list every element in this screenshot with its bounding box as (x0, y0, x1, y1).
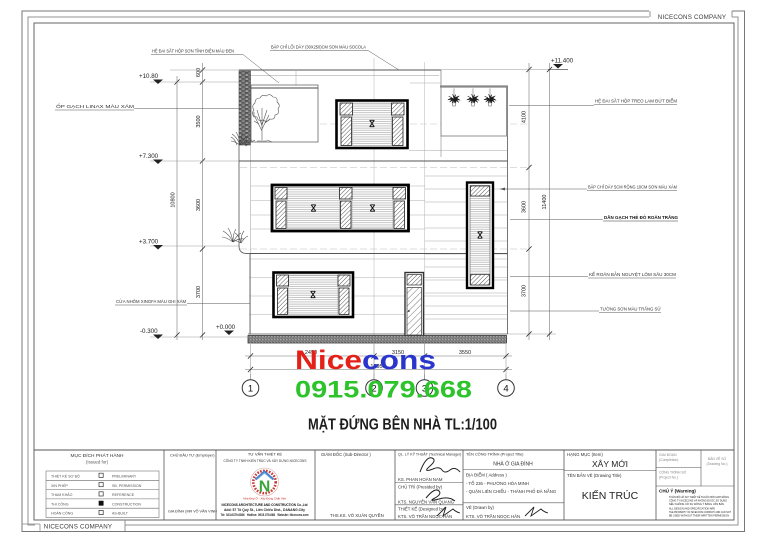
svg-text:NICECONS COMPANY: NICECONS COMPANY (658, 14, 726, 21)
svg-text:TƯỜNG SƠN MÀU TRẮNG SỮ: TƯỜNG SƠN MÀU TRẮNG SỮ (600, 307, 661, 312)
svg-text:THIẾT KẾ SƠ BỘ: THIẾT KẾ SƠ BỘ (51, 474, 80, 479)
svg-text:XÂY MỚI: XÂY MỚI (592, 459, 628, 469)
svg-text:KTS. VÕ TRẦN NGỌC HÂN: KTS. VÕ TRẦN NGỌC HÂN (466, 514, 520, 519)
svg-text:GIA ĐÌNH (MR VÕ VĂN VINH: GIA ĐÌNH (MR VÕ VĂN VINH (168, 509, 217, 514)
svg-text:CHỦ TRÌ (Presided by): CHỦ TRÌ (Presided by) (398, 485, 443, 490)
svg-text:10800: 10800 (171, 192, 177, 207)
svg-text:XIN PHÉP: XIN PHÉP (51, 483, 68, 488)
svg-text:NHÀ Ở GIA ĐÌNH: NHÀ Ở GIA ĐÌNH (493, 461, 533, 468)
svg-text:+0.000: +0.000 (216, 324, 236, 331)
svg-text:N: N (259, 479, 271, 496)
svg-text:BE USED WITHOUT THEIR WRIT: BE USED WITHOUT THEIR WRITTEN PERMISSION (669, 514, 729, 518)
svg-text:600: 600 (196, 68, 202, 77)
svg-text:THAM KHẢO: THAM KHẢO (51, 492, 73, 497)
svg-text:3600: 3600 (522, 201, 528, 213)
svg-text:CONSTRUCTION: CONSTRUCTION (112, 502, 141, 506)
svg-text:THE PROPERTY OF NICECONS COMPA: THE PROPERTY OF NICECONS COMPANY AND CAN… (669, 510, 731, 514)
svg-text:4: 4 (503, 384, 508, 395)
svg-text:SB. PERMISSION: SB. PERMISSION (112, 484, 142, 488)
svg-text:THS.KS. VÕ XUÂN QUYỀN: THS.KS. VÕ XUÂN QUYỀN (330, 513, 384, 518)
svg-text:THI CÔNG: THI CÔNG (51, 501, 69, 506)
svg-text:(Issued for): (Issued for) (86, 460, 109, 465)
svg-text:GIAI ĐOẠN: GIAI ĐOẠN (659, 453, 677, 457)
svg-text:HỆ ĐAI SẮT HỘP TREO LAM ĐỨT ĐI: HỆ ĐAI SẮT HỘP TREO LAM ĐỨT ĐIỂM (595, 99, 677, 104)
svg-text:HẠNG MỤC (Item): HẠNG MỤC (Item) (567, 452, 603, 457)
svg-text:NICECONS ARCHITECTURE AND CONS: NICECONS ARCHITECTURE AND CONSTRUCTION C… (222, 503, 308, 507)
svg-text:REFERENCE: REFERENCE (112, 493, 135, 497)
svg-text:KTS. VÕ TRẦN NGỌC HÂN: KTS. VÕ TRẦN NGỌC HÂN (398, 514, 452, 519)
svg-text:+11.400: +11.400 (551, 58, 574, 65)
svg-text:4100: 4100 (522, 111, 528, 123)
svg-text:AS-BUILT: AS-BUILT (112, 512, 129, 516)
svg-text:Add: 57 Tô Quý St., Liên Chiểu: Add: 57 Tô Quý St., Liên Chiểu Dist., DA… (224, 508, 305, 512)
svg-text:(Completion): (Completion) (659, 458, 678, 462)
svg-text:TÊN CÔNG TRÌNH (Project Title): TÊN CÔNG TRÌNH (Project Title) (466, 452, 524, 457)
svg-text:- TỔ 236 - PHƯỜNG HÒA MINH: - TỔ 236 - PHƯỜNG HÒA MINH (466, 481, 529, 486)
svg-text:BẢN VẼ SỐ: BẢN VẼ SỐ (708, 456, 727, 461)
svg-text:MẶT ĐỨNG BÊN NHÀ TL:1/100: MẶT ĐỨNG BÊN NHÀ TL:1/100 (308, 416, 497, 434)
svg-text:CÔNG TY TNHH KIẾN TRÚC VÀ XÂY: CÔNG TY TNHH KIẾN TRÚC VÀ XÂY DỰNG NICEC… (224, 458, 307, 463)
svg-text:-0.300: -0.300 (140, 328, 158, 335)
svg-text:KỂ ROĂN BẢN NGUYỆT LÕM SÂU 30C: KỂ ROĂN BẢN NGUYỆT LÕM SÂU 30CM (589, 272, 676, 277)
svg-text:(Project No.): (Project No.) (659, 476, 678, 480)
svg-text:DẦN GẠCH THẺ ĐỎ ROĂN TRẮNG: DẦN GẠCH THẺ ĐỎ ROĂN TRẮNG (604, 213, 678, 220)
svg-text:TÊN BẢN VẼ (Drawing Title): TÊN BẢN VẼ (Drawing Title) (567, 473, 622, 478)
svg-text:ĐỊA ĐIỂM ( Address ): ĐỊA ĐIỂM ( Address ) (466, 473, 507, 478)
svg-text:CÔNG TRÌNH SỐ: CÔNG TRÌNH SỐ (659, 470, 687, 475)
svg-text:TƯ VẤN THIẾT KẾ: TƯ VẤN THIẾT KẾ (248, 452, 282, 457)
svg-text:HOÀN CÔNG: HOÀN CÔNG (51, 511, 73, 516)
svg-text:+3.700: +3.700 (139, 239, 159, 246)
svg-text:BẬP CHỈ LỐI DÀY (30X250)CM SƠN: BẬP CHỈ LỐI DÀY (30X250)CM SƠN MÀU SOCOL… (271, 45, 366, 50)
svg-text:CỬA NHÔM XINGFA MÀU GHI XÁM: CỬA NHÔM XINGFA MÀU GHI XÁM (116, 299, 186, 304)
svg-text:3700: 3700 (522, 285, 528, 297)
svg-text:- QUẬN LIÊN CHIỂU - THÀNH PHỐ: - QUẬN LIÊN CHIỂU - THÀNH PHỐ ĐÀ NẴNG (466, 489, 557, 494)
svg-text:(Drawing No.): (Drawing No.) (707, 462, 728, 466)
svg-text:CHÚ Ý (Warning): CHÚ Ý (Warning) (659, 488, 696, 494)
svg-text:Nhà Đẹp Ở - Xây Đúng Chất Việt: Nhà Đẹp Ở - Xây Đúng Chất Việt (243, 496, 286, 501)
svg-text:GIÁM ĐỐC (Sub-Director ): GIÁM ĐỐC (Sub-Director ) (321, 452, 371, 457)
svg-text:HỆ ĐAI SẮT HỘP SƠN TĨNH ĐIỆN M: HỆ ĐAI SẮT HỘP SƠN TĨNH ĐIỆN MÀU ĐEN (152, 49, 234, 54)
svg-text:ỐP GẠCH LINAX MÀU XÁM: ỐP GẠCH LINAX MÀU XÁM (56, 104, 134, 109)
svg-text:11400: 11400 (542, 195, 548, 210)
svg-text:1: 1 (248, 384, 253, 395)
svg-text:THIẾT KẾ (Designed by): THIẾT KẾ (Designed by) (398, 507, 446, 512)
svg-text:0915.079.668: 0915.079.668 (295, 377, 472, 404)
svg-text:KS. PHAN HOÀN NAM: KS. PHAN HOÀN NAM (398, 477, 443, 482)
svg-text:VẼ (Drawn by): VẼ (Drawn by) (466, 505, 495, 510)
svg-text:3550: 3550 (459, 350, 471, 356)
svg-text:Tel: 023.6379.6366 Hotline:: Tel: 023.6379.6366 Hotline: 0915.079.668… (221, 513, 309, 517)
svg-text:3500: 3500 (196, 115, 202, 127)
svg-text:QL. LÝ KỸ THUẬT (Technical Man: QL. LÝ KỸ THUẬT (Technical Manager) (398, 452, 461, 457)
svg-text:+10.80: +10.80 (139, 73, 159, 80)
svg-text:PRELIMINARY: PRELIMINARY (112, 475, 137, 479)
svg-text:NICECONS COMPANY: NICECONS COMPANY (44, 524, 112, 531)
svg-text:BẬP CHỈ DÀY 5CM RỘNG 10CM SƠN: BẬP CHỈ DÀY 5CM RỘNG 10CM SƠN MÀU XÁM (588, 185, 677, 190)
svg-text:ALL DESIGN AND SPECIFICATION A: ALL DESIGN AND SPECIFICATION ARE (669, 507, 715, 511)
svg-text:KIẾN TRÚC: KIẾN TRÚC (582, 489, 639, 502)
svg-text:+7.300: +7.300 (139, 153, 159, 160)
svg-text:3700: 3700 (196, 286, 202, 298)
svg-text:MỤC ĐÍCH PHÁT HÀNH: MỤC ĐÍCH PHÁT HÀNH (71, 452, 124, 459)
svg-text:3600: 3600 (196, 199, 202, 211)
svg-text:KTS. NGUYỄN VĂN QUANG: KTS. NGUYỄN VĂN QUANG (398, 500, 455, 505)
svg-text:Nicecons: Nicecons (295, 345, 436, 375)
svg-text:CHỦ ĐẦU TƯ (Employer): CHỦ ĐẦU TƯ (Employer) (170, 453, 215, 458)
